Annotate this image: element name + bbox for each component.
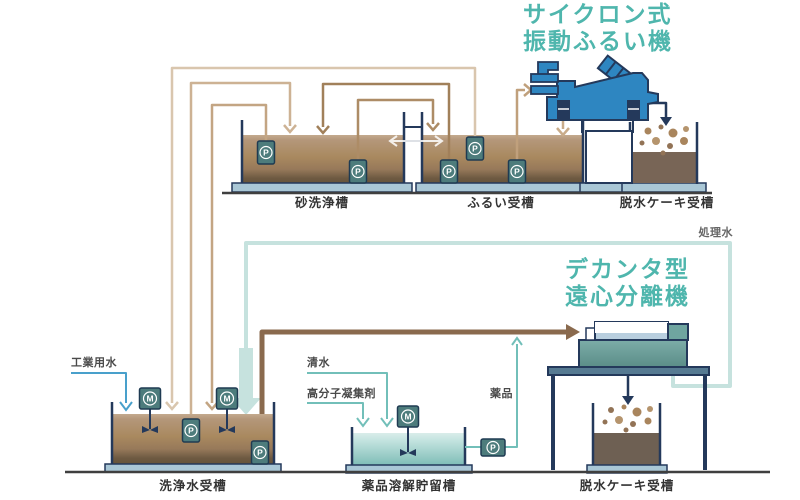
- pump-sieve-tank-left: P: [441, 160, 458, 183]
- decanter-base: [579, 340, 687, 367]
- pump-washing-tank-right: P: [252, 441, 269, 464]
- svg-text:P: P: [472, 144, 478, 154]
- bowl-band: [595, 333, 668, 340]
- industrial-water-pipe: [71, 373, 132, 410]
- svg-text:M: M: [223, 394, 230, 404]
- diagram-canvas: P P P P P P P P M: [0, 0, 800, 500]
- flocculant-label: 高分子凝集剤: [307, 386, 376, 400]
- sieve-machine-title-line1: サイクロン式: [523, 1, 673, 27]
- fresh-water-label: 清水: [307, 355, 330, 369]
- svg-text:P: P: [188, 426, 194, 436]
- sieve-machine-title-line2: 振動ふるい機: [523, 28, 673, 54]
- pump-sieve-tank-right: P: [509, 160, 526, 183]
- decanter-title-line2: 遠心分離機: [565, 283, 690, 309]
- cake-tank-top-label: 脱水ケーキ受槽: [620, 195, 715, 210]
- inlet-pipe-lower: [531, 86, 558, 94]
- falling-cake-particles-bottom: [603, 405, 654, 433]
- washing-water-tank-label: 洗浄水受槽: [159, 478, 227, 493]
- pump-sand-tank-right: P: [350, 160, 367, 183]
- svg-text:P: P: [263, 148, 269, 158]
- inlet-pipe-upper: [531, 74, 558, 82]
- cake-tank-top-base: [622, 183, 706, 192]
- pump-sand-tank-left: P: [258, 141, 275, 164]
- svg-text:P: P: [355, 167, 361, 177]
- decanter-drive: [668, 324, 688, 340]
- treated-water-label: 処理水: [698, 225, 734, 239]
- decanter-table: [548, 367, 709, 375]
- process-flow-diagram: P P P P P P P P M: [0, 0, 800, 500]
- chemical-label: 薬品: [490, 386, 513, 400]
- pump-washing-tank-left: P: [183, 419, 200, 442]
- falling-cake-particles: [640, 125, 690, 156]
- bowl-top: [595, 322, 668, 333]
- svg-text:P: P: [490, 443, 496, 453]
- sieve-cake-discharge-arrow: [651, 103, 672, 126]
- chemical-tank-label: 薬品溶解貯留槽: [361, 478, 457, 493]
- sieve-receiving-tank-label: ふるい受槽: [467, 195, 535, 210]
- pump-chemical-dosing: P: [481, 439, 505, 456]
- decanter-title-line1: デカンタ型: [565, 256, 690, 282]
- cake-receiving-tank-bottom: [587, 403, 667, 473]
- tank-divider-gate: [404, 112, 422, 191]
- decanter-inlet: [586, 328, 595, 340]
- machine-pedestal: [586, 131, 632, 183]
- svg-text:M: M: [404, 412, 411, 422]
- sand-washing-tank-label: 砂洗浄槽: [294, 195, 349, 210]
- svg-text:M: M: [146, 394, 153, 404]
- sieve-tank-base: [416, 183, 586, 192]
- decanter-cake-arrow: [622, 376, 634, 405]
- cake-tank-bottom-label: 脱水ケーキ受槽: [580, 478, 675, 493]
- sand-tank-base: [232, 183, 412, 192]
- pump-sieve-tank-mid: P: [467, 137, 484, 160]
- cake-receiving-tank-top: [630, 122, 697, 184]
- svg-text:P: P: [514, 167, 520, 177]
- svg-text:P: P: [257, 448, 263, 458]
- industrial-water-label: 工業用水: [71, 355, 117, 369]
- svg-text:P: P: [446, 167, 452, 177]
- flocculant-pipe: [307, 403, 369, 426]
- feed-arrowhead: [566, 324, 580, 340]
- slurry-feed-pipe: [262, 324, 580, 442]
